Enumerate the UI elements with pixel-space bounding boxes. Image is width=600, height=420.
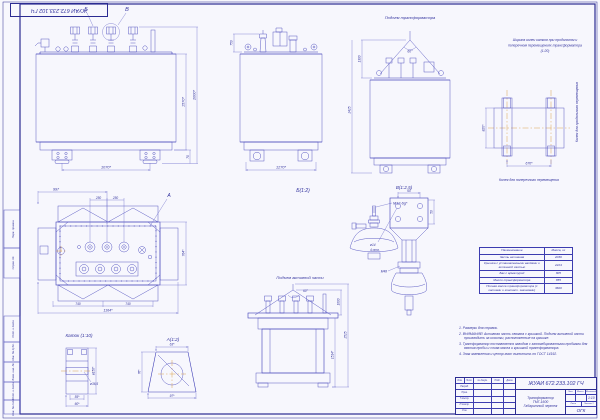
side-label: Подп. и дата bbox=[11, 382, 15, 400]
dim-track-w: 670* bbox=[526, 162, 534, 166]
tb-header-cell: Дата bbox=[504, 378, 515, 383]
drawing-title: Трансформатор ТМГ-1600 Габаритный чертеж bbox=[516, 390, 566, 414]
hv-bushings bbox=[71, 27, 138, 52]
note-item: 4. Знак заземления и центр масс выполнит… bbox=[459, 352, 596, 357]
title-block-scale-grid: Лит. Масса Масштаб 1:10 Лист Листов 1 ОГ… bbox=[566, 390, 596, 414]
track-note-line1: Ширина колеи катков при продольном и bbox=[513, 38, 578, 42]
marker-v: В bbox=[125, 7, 129, 13]
part-name: Полная масса трансформатора (с катками и… bbox=[480, 284, 545, 294]
oil-pipe bbox=[151, 30, 155, 52]
marker-a: А bbox=[166, 193, 171, 199]
dim-lift-h1: 1300 bbox=[358, 55, 362, 62]
dim-a-top: 63* bbox=[170, 343, 176, 347]
tb-sig-label: Т.контр. bbox=[456, 397, 474, 402]
note-item: 1. Размеры для справок. bbox=[459, 326, 596, 331]
part-mass: 3600 bbox=[544, 284, 572, 294]
front-view: Б В 1070* 1570* 2000* 70 bbox=[35, 7, 198, 171]
detail-a-label: А(1:2) bbox=[166, 337, 180, 342]
dim-plan-total: 1164* bbox=[103, 309, 113, 313]
dim-side-width: 1270* bbox=[276, 166, 286, 170]
doc-number: ЖУАИ 672.233.102 ГЧ bbox=[516, 378, 596, 390]
mass-table: Наименование Масса, кг Часть активная 20… bbox=[479, 247, 573, 294]
scale-value: 1:10 bbox=[587, 395, 596, 401]
dim-active-h2: 2525 bbox=[344, 331, 348, 339]
side-label: Перв. примен. bbox=[11, 219, 15, 238]
dim-v-holes-d: ø14 bbox=[370, 243, 376, 247]
track-longitudinal-caption: Колея для продольного перемещения bbox=[575, 82, 579, 142]
detail-b-label: Б(1:2) bbox=[296, 188, 310, 194]
plan-hv-bushings bbox=[78, 242, 130, 252]
dim-side-bushing: 750 bbox=[230, 40, 234, 46]
tb-header-cell: Изм. bbox=[456, 378, 465, 383]
active-part-bushings bbox=[265, 294, 327, 313]
lift-transformer-label: Подъем трансформатора bbox=[385, 15, 436, 20]
dim-roller-d: ø150* bbox=[92, 366, 96, 375]
dim-v-thread: М48 bbox=[381, 270, 387, 274]
tb-sig-label: Разраб. bbox=[456, 384, 474, 389]
lift-bushings bbox=[377, 58, 444, 78]
title-block: Изм. Лист № докум. Подп. Дата Разраб. Пр… bbox=[455, 377, 597, 415]
side-label: Справ. № bbox=[11, 257, 15, 270]
side-view: 750 1270* bbox=[230, 28, 322, 171]
dim-v-holes-n: 4 отв. bbox=[370, 248, 380, 252]
scale-label: Масштаб bbox=[586, 390, 596, 394]
tb-header-cell: № докум. bbox=[474, 378, 492, 383]
active-part-lift-view: Подъем активной части 60° 1000 2525 1514… bbox=[248, 275, 349, 387]
table-row: Крышка с установленными вводами и активн… bbox=[480, 261, 573, 271]
note-item: 3. Трансформатор поставляется заводом с … bbox=[459, 342, 596, 351]
top-left-stamp: ЖУАИ 672.233.102 ГЧ bbox=[10, 3, 108, 17]
dim-plan-w1: 997 bbox=[53, 188, 60, 192]
dim-plan-740a: 740 bbox=[75, 302, 81, 306]
dim-plan-h: 764* bbox=[182, 249, 186, 257]
track-note-line2: поперечном перемещениях трансформатора bbox=[508, 44, 582, 48]
sheets-label: Листов 1 bbox=[582, 402, 597, 406]
part-mass: 2224 bbox=[544, 261, 572, 271]
mass-label: Масса bbox=[576, 390, 586, 394]
plan-view: А 997 250 250 764* 740 740 1164* bbox=[38, 188, 187, 315]
top-left-stamp-text: ЖУАИ 672.233.102 ГЧ bbox=[31, 7, 87, 13]
dim-lift-h2: 2425 bbox=[348, 106, 352, 114]
dim-sling-angle: 60° bbox=[303, 289, 309, 293]
dim-roller-axle: ø36,5 bbox=[90, 382, 98, 386]
dim-v-top: 60 bbox=[407, 189, 411, 193]
tb-header-cell: Подп. bbox=[492, 378, 504, 383]
dim-roller-w2: 60* bbox=[75, 402, 81, 406]
part-name: Крышка с установленными вводами и активн… bbox=[480, 261, 545, 271]
title-block-signatures: Изм. Лист № докум. Подп. Дата Разраб. Пр… bbox=[456, 378, 516, 414]
note-item: 2. ВНИМАНИЕ! Активная часть связана с кр… bbox=[459, 332, 596, 341]
tb-sig-label: Н.контр. bbox=[456, 403, 474, 408]
side-column-cells: Перв. примен. Справ. № Подп. и дата Инв.… bbox=[4, 210, 20, 416]
side-label: Подп. и дата bbox=[11, 320, 15, 338]
dim-plan-250b: 250 bbox=[112, 196, 119, 200]
corner-gusset-detail: А(1:2) 63* 76* 97* bbox=[138, 337, 196, 399]
side-label: Взам. инв. № bbox=[11, 363, 15, 380]
track-note-line3: (1:20) bbox=[541, 49, 550, 53]
side-label: Инв. № подл. bbox=[11, 398, 15, 416]
roller-label: Каток (1:10) bbox=[65, 333, 93, 338]
dim-a-side: 76* bbox=[138, 369, 142, 375]
dim-track-h: 820* bbox=[482, 124, 486, 132]
wheel-brackets bbox=[52, 150, 160, 164]
thermometer bbox=[41, 39, 49, 47]
dim-front-width: 1070* bbox=[101, 166, 111, 170]
table-row: Полная масса трансформатора (с катками и… bbox=[480, 284, 573, 294]
dim-roller-w1: 55* bbox=[75, 395, 81, 399]
dim-plan-740b: 740 bbox=[125, 302, 131, 306]
dim-front-base: 70 bbox=[186, 155, 190, 159]
lv-bushing-detail: Б(1:2) М12-6g* bbox=[296, 188, 408, 259]
drawing-sheet: Перв. примен. Справ. № Подп. и дата Инв.… bbox=[0, 0, 600, 420]
track-transverse-caption: Колея для поперечного перемещения bbox=[499, 178, 559, 182]
tb-sig-label: Утв. bbox=[456, 409, 474, 414]
dim-front-h1: 1570* bbox=[182, 97, 186, 107]
roller-detail: Каток (1:10) ø150* ø36,5 55* 60* bbox=[61, 333, 98, 407]
tb-sig-label: Пров. bbox=[456, 390, 474, 395]
lift-transformer-view: Подъем трансформатора 60° 1300 2425 bbox=[348, 15, 450, 173]
track-plan: Ширина колеи катков при продольном и поп… bbox=[482, 38, 582, 182]
dim-active-h3: 1514* bbox=[331, 350, 335, 359]
dim-a-bottom: 97* bbox=[170, 394, 176, 398]
dim-front-h2: 2000* bbox=[193, 90, 197, 101]
drawing-title-line: Габаритный чертеж bbox=[524, 404, 558, 408]
org-name: ОГК bbox=[566, 407, 596, 414]
dim-v-side: 50 bbox=[430, 210, 434, 214]
title-block-main: ЖУАИ 672.233.102 ГЧ Трансформатор ТМГ-16… bbox=[516, 378, 596, 414]
dim-lift-angle: 60° bbox=[407, 50, 413, 54]
dim-active-h1: 1000 bbox=[337, 298, 341, 305]
sheet-label: Лист bbox=[566, 402, 582, 406]
lit-label: Лит. bbox=[566, 390, 576, 394]
tb-header-cell: Лист bbox=[465, 378, 474, 383]
lift-active-label: Подъем активной части bbox=[276, 275, 324, 280]
plan-lv-bushings bbox=[76, 262, 138, 276]
technical-notes: 1. Размеры для справок. 2. ВНИМАНИЕ! Акт… bbox=[459, 326, 596, 358]
side-label: Инв. № дубл. bbox=[11, 343, 15, 360]
dim-plan-250a: 250 bbox=[95, 196, 102, 200]
